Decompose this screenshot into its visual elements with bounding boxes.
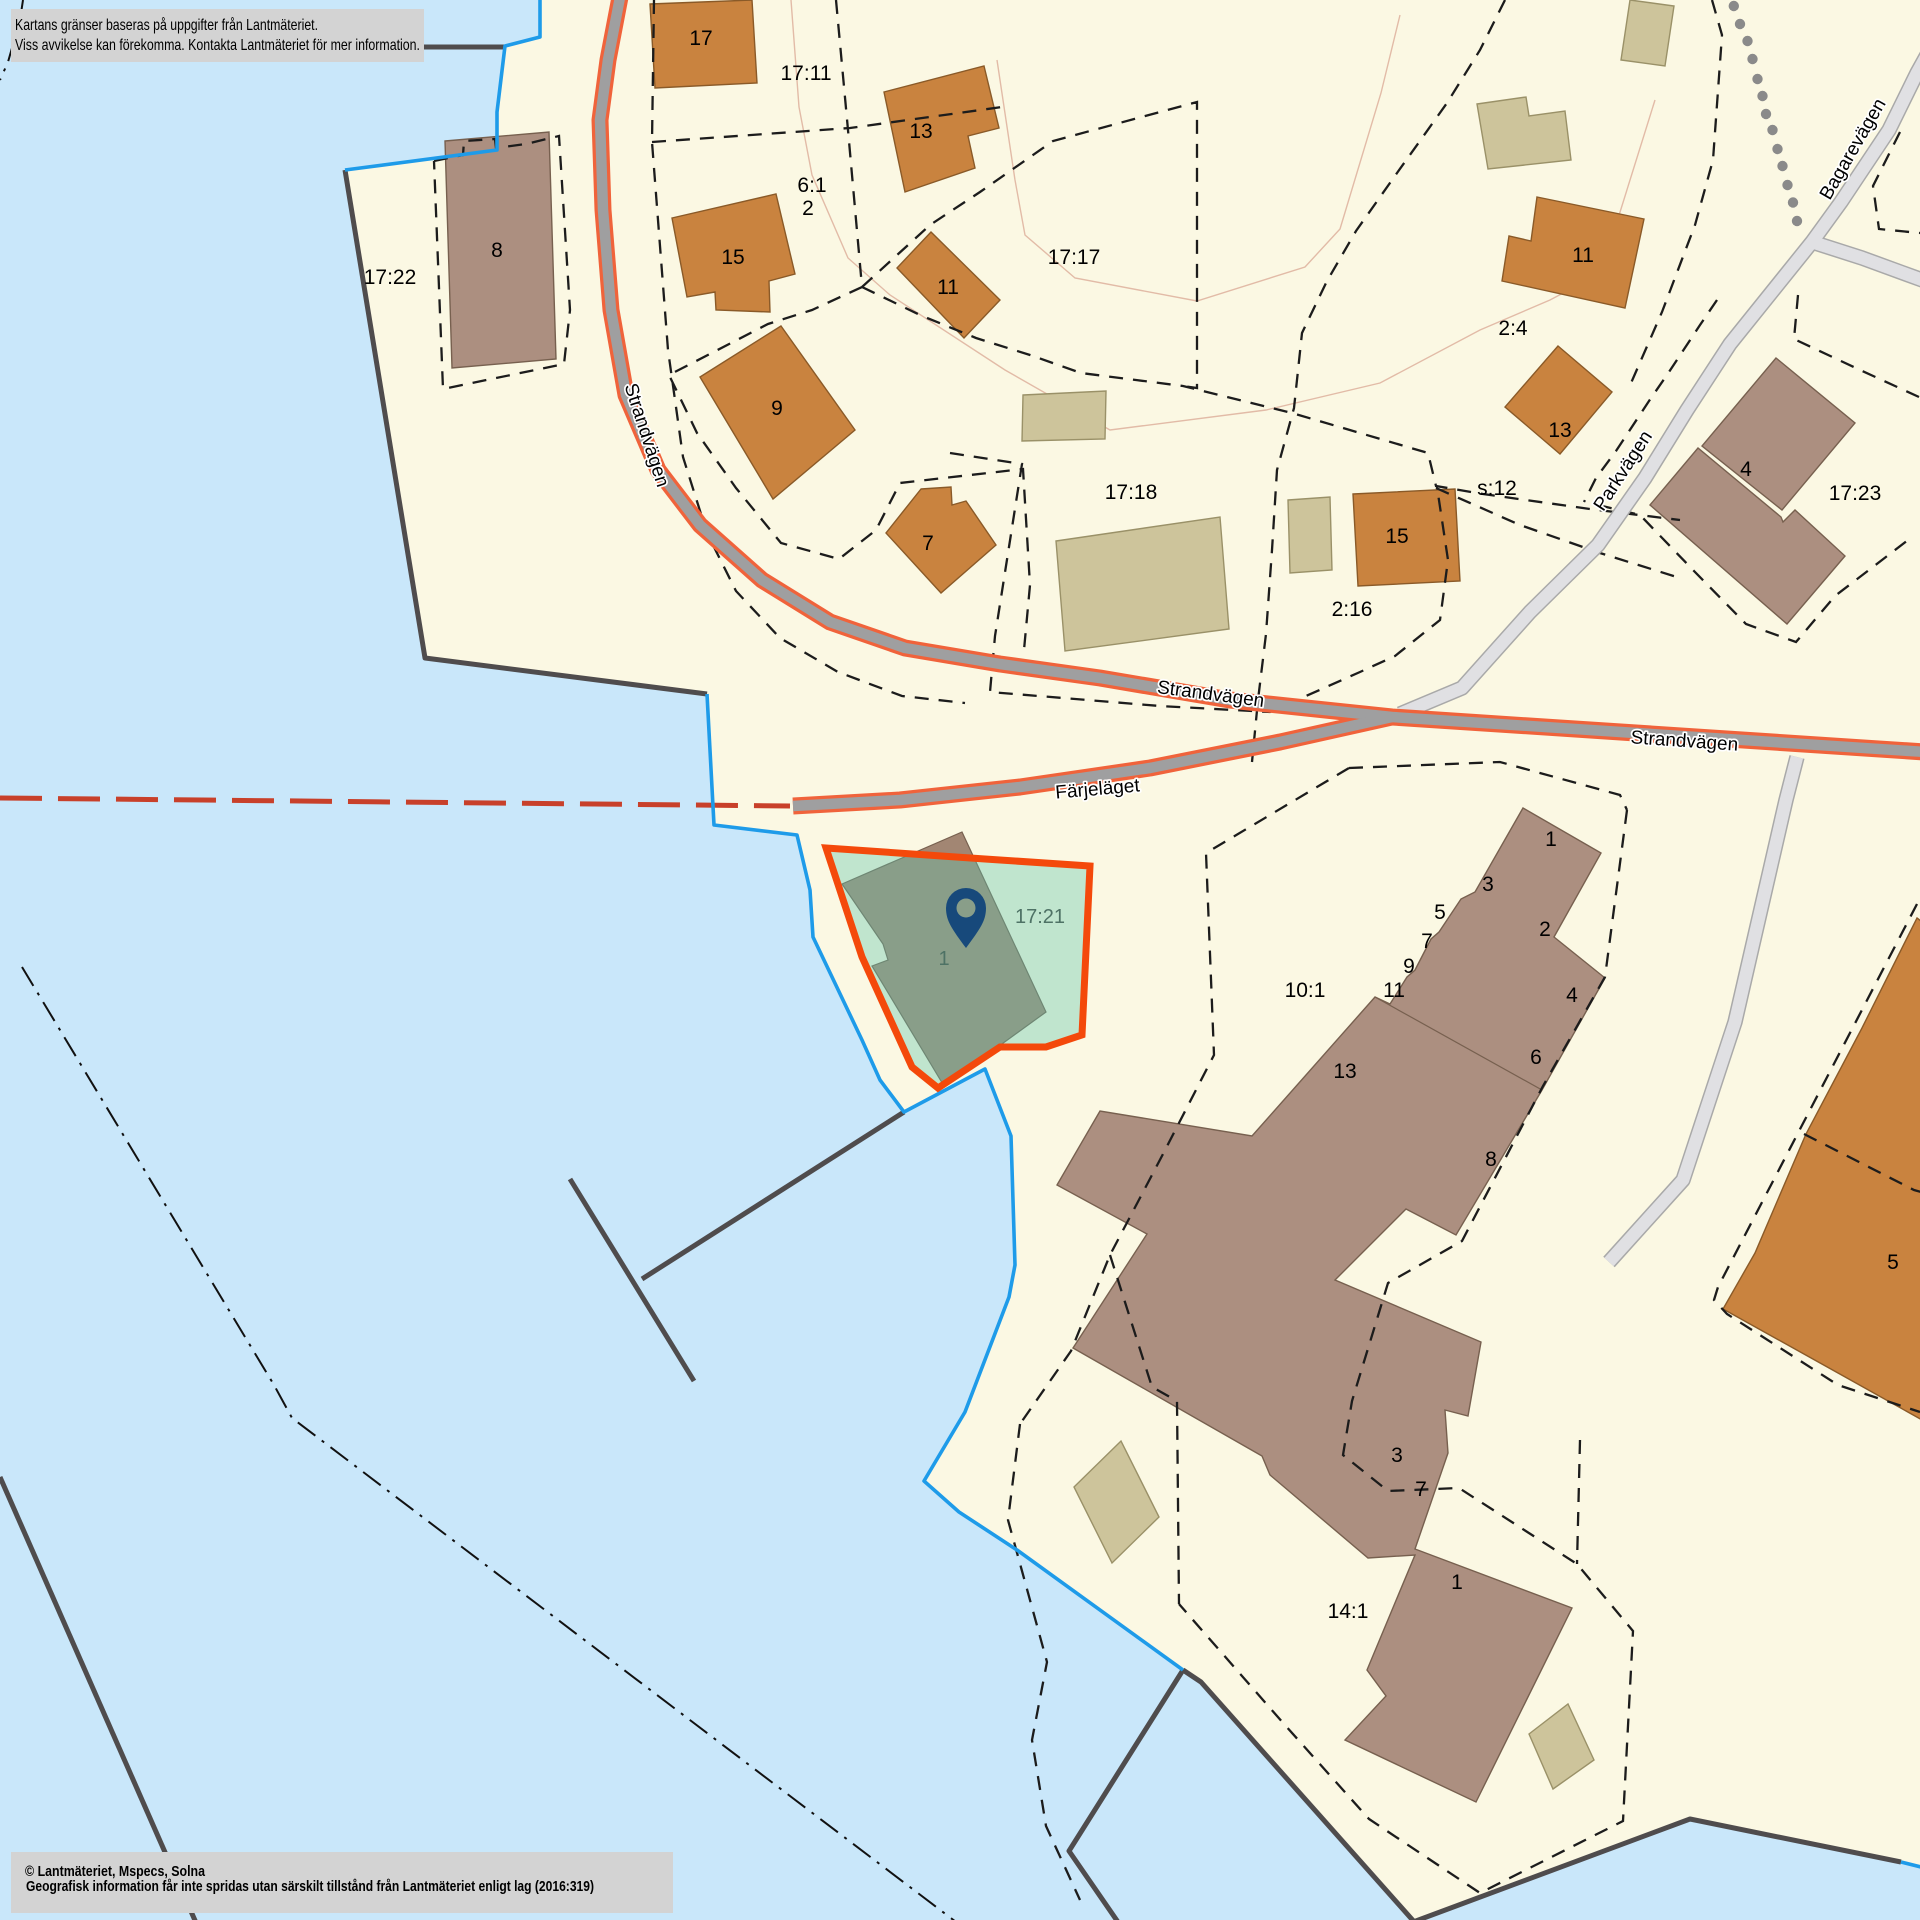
svg-text:6:1: 6:1 <box>797 174 826 197</box>
svg-text:17:18: 17:18 <box>1105 481 1158 504</box>
svg-text:13: 13 <box>1333 1060 1356 1083</box>
svg-text:17:22: 17:22 <box>364 266 417 289</box>
svg-text:4: 4 <box>1740 458 1752 481</box>
svg-text:13: 13 <box>1548 419 1571 442</box>
svg-text:Geografisk information får int: Geografisk information får inte spridas … <box>26 1879 594 1895</box>
svg-text:s:12: s:12 <box>1477 477 1517 500</box>
svg-text:7: 7 <box>1421 930 1433 953</box>
svg-text:5: 5 <box>1887 1251 1899 1274</box>
svg-text:15: 15 <box>1385 525 1408 548</box>
svg-text:Kartans gränser baseras på upp: Kartans gränser baseras på uppgifter frå… <box>15 16 318 34</box>
svg-text:17:11: 17:11 <box>781 62 832 85</box>
svg-text:11: 11 <box>1383 979 1405 1002</box>
svg-text:9: 9 <box>1403 955 1415 978</box>
svg-text:Viss avvikelse kan förekomma.: Viss avvikelse kan förekomma. Kontakta L… <box>15 37 420 54</box>
svg-text:14:1: 14:1 <box>1328 1600 1369 1623</box>
svg-text:3: 3 <box>1391 1444 1403 1467</box>
svg-text:8: 8 <box>491 239 503 262</box>
svg-text:9: 9 <box>771 397 783 420</box>
svg-text:2:16: 2:16 <box>1332 598 1373 621</box>
svg-text:4: 4 <box>1566 984 1578 1007</box>
svg-text:15: 15 <box>721 246 744 269</box>
svg-text:6: 6 <box>1530 1046 1542 1069</box>
svg-text:1: 1 <box>938 948 949 970</box>
svg-text:8: 8 <box>1485 1148 1497 1171</box>
svg-text:2: 2 <box>1539 918 1551 941</box>
svg-text:17: 17 <box>689 27 712 50</box>
svg-text:7: 7 <box>922 532 934 555</box>
svg-text:11: 11 <box>937 276 959 299</box>
svg-text:13: 13 <box>909 120 932 143</box>
svg-text:© Lantmäteriet, Mspecs, Solna: © Lantmäteriet, Mspecs, Solna <box>25 1864 206 1880</box>
svg-text:10:1: 10:1 <box>1285 979 1326 1002</box>
svg-text:1: 1 <box>1451 1571 1463 1594</box>
svg-text:17:17: 17:17 <box>1048 246 1101 269</box>
svg-text:5: 5 <box>1434 901 1446 924</box>
svg-text:2:4: 2:4 <box>1498 317 1528 340</box>
svg-text:11: 11 <box>1572 244 1594 267</box>
svg-text:17:21: 17:21 <box>1015 906 1065 928</box>
svg-text:17:23: 17:23 <box>1829 482 1882 505</box>
svg-text:7: 7 <box>1415 1478 1427 1501</box>
svg-text:2: 2 <box>802 197 814 220</box>
svg-text:1: 1 <box>1545 828 1557 851</box>
svg-text:3: 3 <box>1482 873 1494 896</box>
